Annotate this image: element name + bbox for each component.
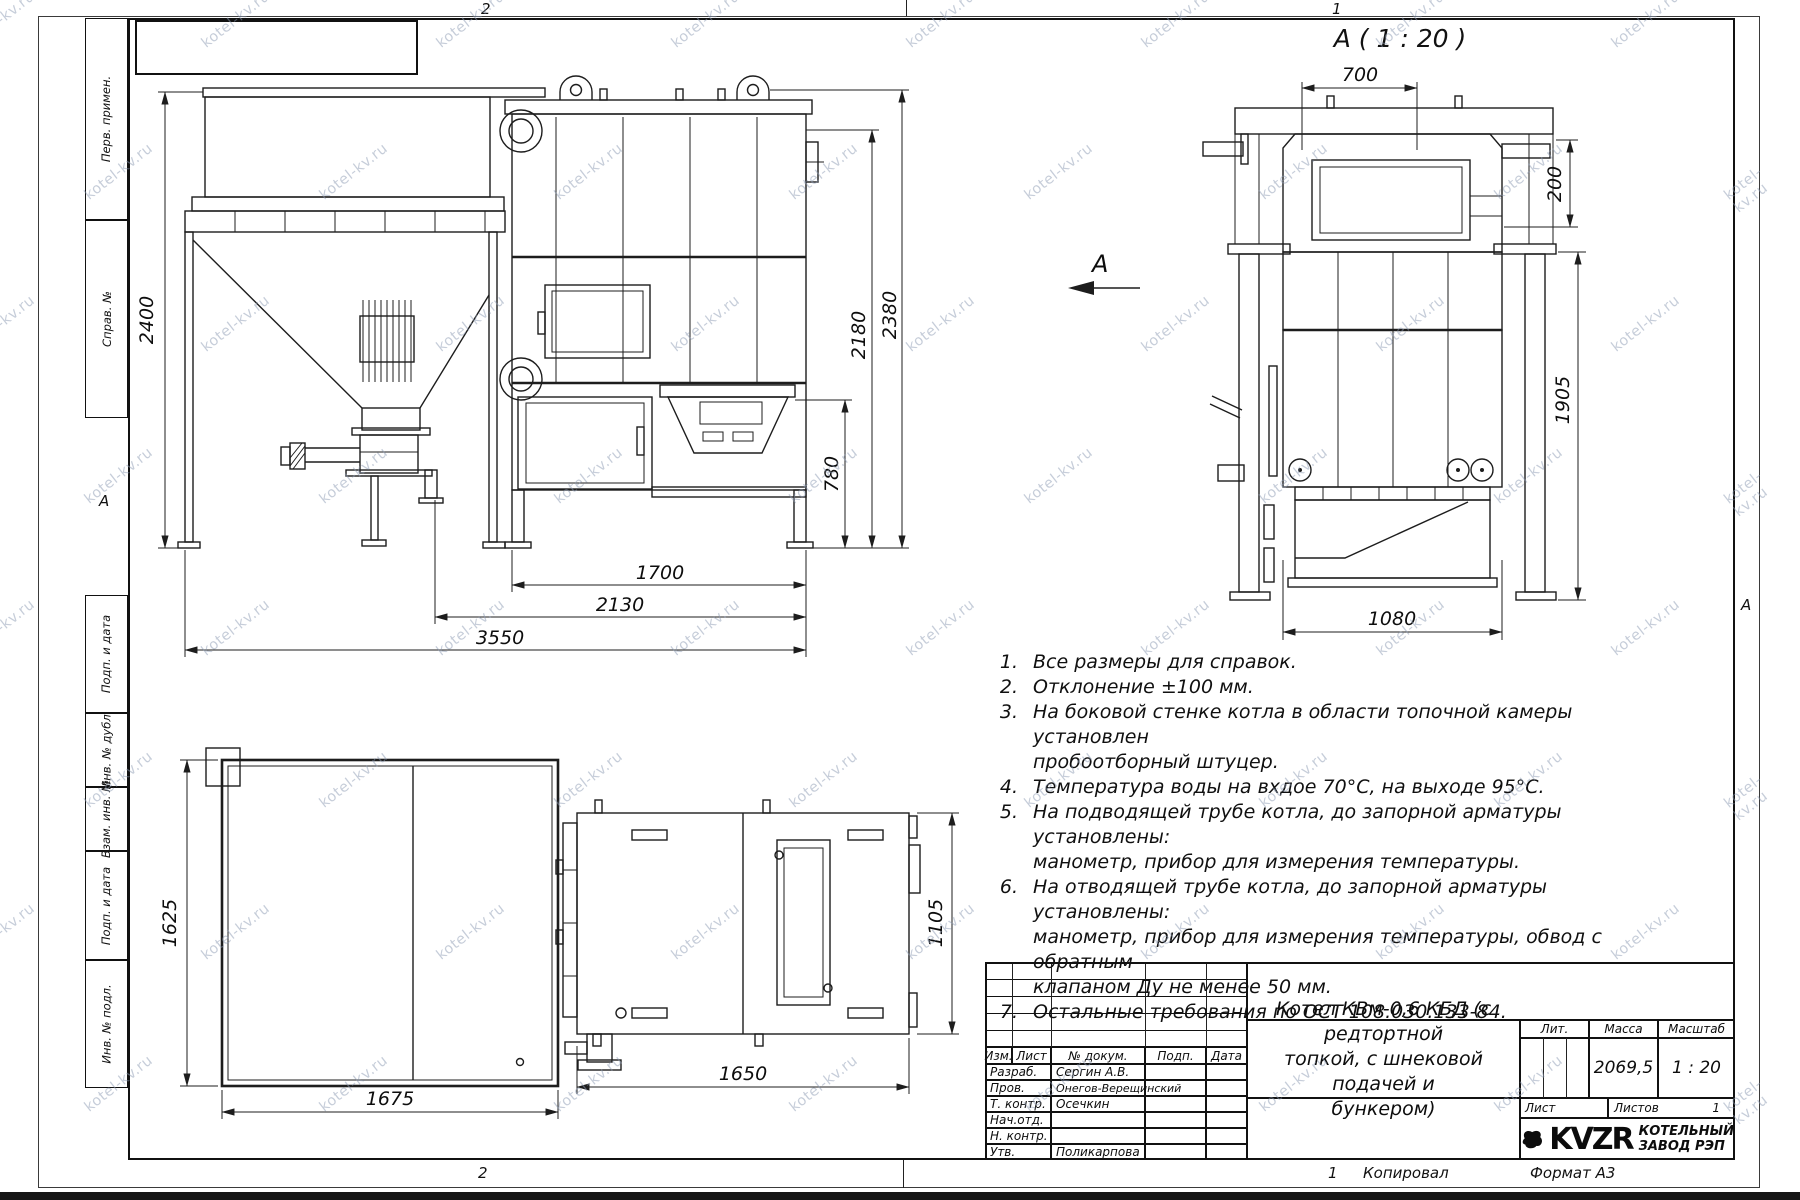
sheet-edge-band (0, 1192, 1800, 1200)
sidebar-label: Взам. инв. № (100, 780, 114, 858)
note-number: 5. (988, 800, 1018, 875)
copied-label: Копировал (1363, 1164, 1449, 1182)
zone-number: 2 (481, 0, 491, 18)
format-label: Формат А3 (1530, 1164, 1615, 1182)
sidebar-box-vzam-inv: Взам. инв. № (85, 787, 128, 851)
zone-number: 1 (1328, 1164, 1338, 1182)
sidebar-label: Подп. и дата (100, 866, 114, 944)
note-item: 4.Температура воды на вхдое 70°С, на вых… (988, 775, 1678, 800)
note-text: На подводящей трубе котла, до запорной а… (1033, 800, 1678, 875)
top-left-stamp-box (135, 20, 418, 75)
zone-number: 2 (478, 1164, 488, 1182)
sidebar-box-inv-dubl: Инв. № дубл. (85, 713, 128, 787)
note-item: 2.Отклонение ±100 мм. (988, 675, 1678, 700)
sidebar-box-sprav-no: Справ. № (85, 220, 128, 418)
note-item: 1.Все размеры для справок. (988, 650, 1678, 675)
sidebar-label: Справ. № (100, 291, 114, 347)
sidebar-box-podp-data2: Подп. и дата (85, 851, 128, 960)
title-block (985, 962, 1735, 1160)
sidebar-box-podp-data1: Подп. и дата (85, 595, 128, 713)
zone-number: 1 (1332, 0, 1342, 18)
sidebar-label: Инв. № дубл. (100, 711, 114, 790)
note-number: 1. (988, 650, 1018, 675)
watermark-text: kotel-kv.ru (0, 0, 38, 51)
sidebar-box-perv-primen: Перв. примен. (85, 18, 128, 220)
note-number: 3. (988, 700, 1018, 775)
sidebar-label: Перв. примен. (100, 76, 114, 162)
drawing-sheet: 2 1 2 1 Копировал Формат А3 А А Перв. пр… (0, 0, 1800, 1200)
note-text: Отклонение ±100 мм. (1033, 675, 1254, 700)
fold-marker-left: А (99, 492, 109, 510)
detail-view-title: А ( 1 : 20 ) (1300, 24, 1500, 53)
note-number: 2. (988, 675, 1018, 700)
zone-divider-top (906, 0, 907, 16)
watermark-text: kotel-kv.ru (0, 901, 38, 964)
note-item: 5.На подводящей трубе котла, до запорной… (988, 800, 1678, 875)
sidebar-label: Инв. № подл. (100, 984, 114, 1063)
note-text: Все размеры для справок. (1033, 650, 1297, 675)
zone-divider-bottom (903, 1160, 904, 1188)
watermark-text: kotel-kv.ru (0, 293, 38, 356)
note-item: 3.На боковой стенке котла в области топо… (988, 700, 1678, 775)
note-text: На боковой стенке котла в области топочн… (1033, 700, 1678, 775)
fold-marker-right: А (1741, 596, 1751, 614)
note-text: Температура воды на вхдое 70°С, на выход… (1033, 775, 1545, 800)
note-number: 4. (988, 775, 1018, 800)
watermark-text: kotel-kv.ru (0, 597, 38, 660)
sidebar-label: Подп. и дата (100, 615, 114, 693)
sidebar-box-inv-podl: Инв. № подл. (85, 960, 128, 1088)
